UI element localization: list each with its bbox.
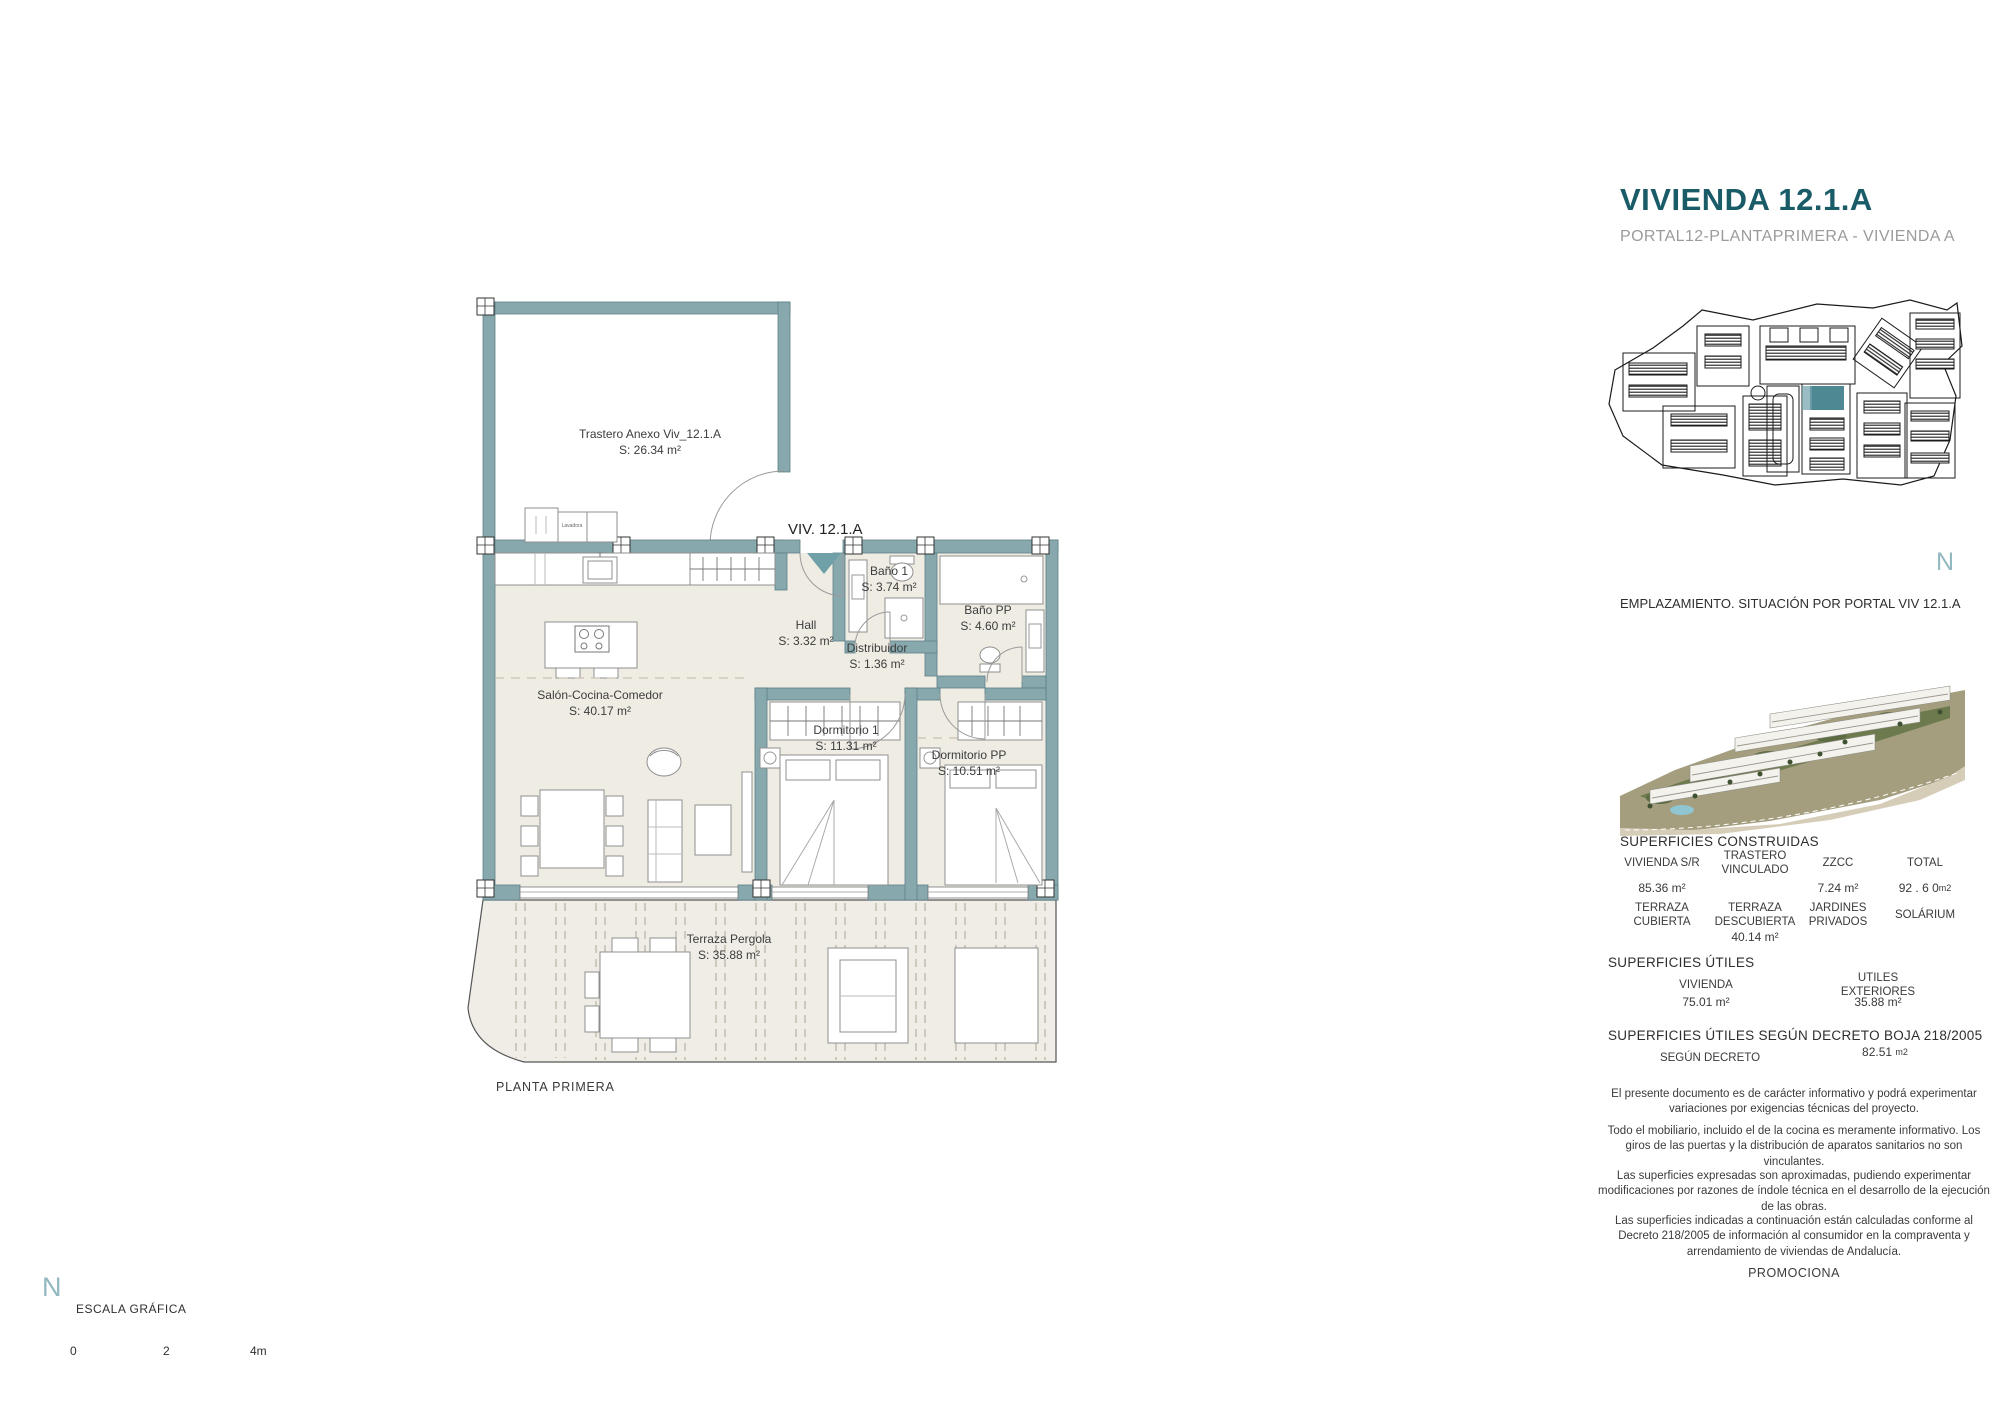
floor-caption: PLANTA PRIMERA — [496, 1080, 615, 1094]
north-indicator: N — [1936, 548, 1954, 577]
construidas-header: SOLÁRIUM — [1875, 902, 1975, 930]
room-label-salon: Salón-Cocina-Comedor S: 40.17 m² — [537, 688, 662, 719]
construidas-title: SUPERFICIES CONSTRUIDAS — [1620, 834, 1819, 849]
scale-tick-2: 2 — [163, 1344, 170, 1358]
page-title: VIVIENDA 12.1.A — [1620, 182, 1873, 218]
entry-unit-label: VIV. 12.1.A — [788, 521, 863, 538]
construidas-value: 40.14 m² — [1705, 930, 1805, 944]
construidas-value: 7.24 m² — [1788, 881, 1888, 895]
utiles-value: 35.88 m² — [1828, 995, 1928, 1009]
utiles-value: 75.01 m² — [1656, 995, 1756, 1009]
construidas-header: TERRAZA CUBIERTA — [1612, 902, 1712, 930]
scale-tick-4m: 4m — [250, 1344, 267, 1358]
construidas-value-total: 92 . 6 0m2 — [1875, 881, 1975, 895]
room-label-distribuidor: Distribuidor S: 1.36 m² — [847, 641, 908, 672]
utiles-title: SUPERFICIES ÚTILES — [1608, 955, 1754, 970]
construidas-header: VIVIENDA S/R — [1612, 850, 1712, 878]
scale-tick-0: 0 — [70, 1344, 77, 1358]
legal-paragraph-2: Todo el mobiliario, incluido el de la co… — [1598, 1124, 1990, 1170]
construidas-header: TOTAL — [1875, 850, 1975, 878]
page-subtitle: PORTAL12-PLANTAPRIMERA - VIVIENDA A — [1620, 228, 1955, 246]
decreto-label: SEGÚN DECRETO — [1645, 1045, 1775, 1073]
legal-paragraph-1: El presente documento es de carácter inf… — [1598, 1087, 1990, 1118]
promociona-label: PROMOCIONA — [1598, 1266, 1990, 1280]
construidas-header: ZZCC — [1788, 850, 1888, 878]
washer-label: Lavadora — [562, 523, 583, 529]
scale-title: ESCALA GRÁFICA — [76, 1302, 186, 1316]
room-label-dormpp: Dormitorio PP S: 10.51 m² — [932, 748, 1007, 779]
decreto-title: SUPERFICIES ÚTILES SEGÚN DECRETO BOJA 21… — [1608, 1028, 1982, 1043]
room-label-banopp: Baño PP S: 4.60 m² — [960, 603, 1015, 634]
room-label-bano1: Baño 1 S: 3.74 m² — [861, 564, 916, 595]
room-label-terraza: Terraza Pergola S: 35.88 m² — [687, 932, 772, 963]
room-label-dorm1: Dormitorio 1 S: 11.31 m² — [813, 723, 878, 754]
room-label-trastero: Trastero Anexo Viv_12.1.A S: 26.34 m² — [579, 427, 721, 458]
legal-paragraph-3: Las superficies expresadas son aproximad… — [1598, 1169, 1990, 1215]
emplazamiento-caption: EMPLAZAMIENTO. SITUACIÓN POR PORTAL VIV … — [1620, 596, 1961, 611]
north-indicator-plan: N — [42, 1272, 62, 1303]
construidas-value: 85.36 m² — [1612, 881, 1712, 895]
decreto-value: 82.51 m2 — [1835, 1045, 1935, 1059]
site-plan — [1609, 300, 1962, 485]
aerial-render — [1620, 678, 1965, 836]
room-label-hall: Hall S: 3.32 m² — [778, 618, 833, 649]
construidas-header: JARDINES PRIVADOS — [1788, 902, 1888, 930]
document-page: VIVIENDA 12.1.A PORTAL12-PLANTAPRIMERA -… — [0, 0, 2000, 1414]
unit-highlight — [1810, 386, 1844, 410]
legal-paragraph-4: Las superficies indicadas a continuación… — [1598, 1214, 1990, 1260]
